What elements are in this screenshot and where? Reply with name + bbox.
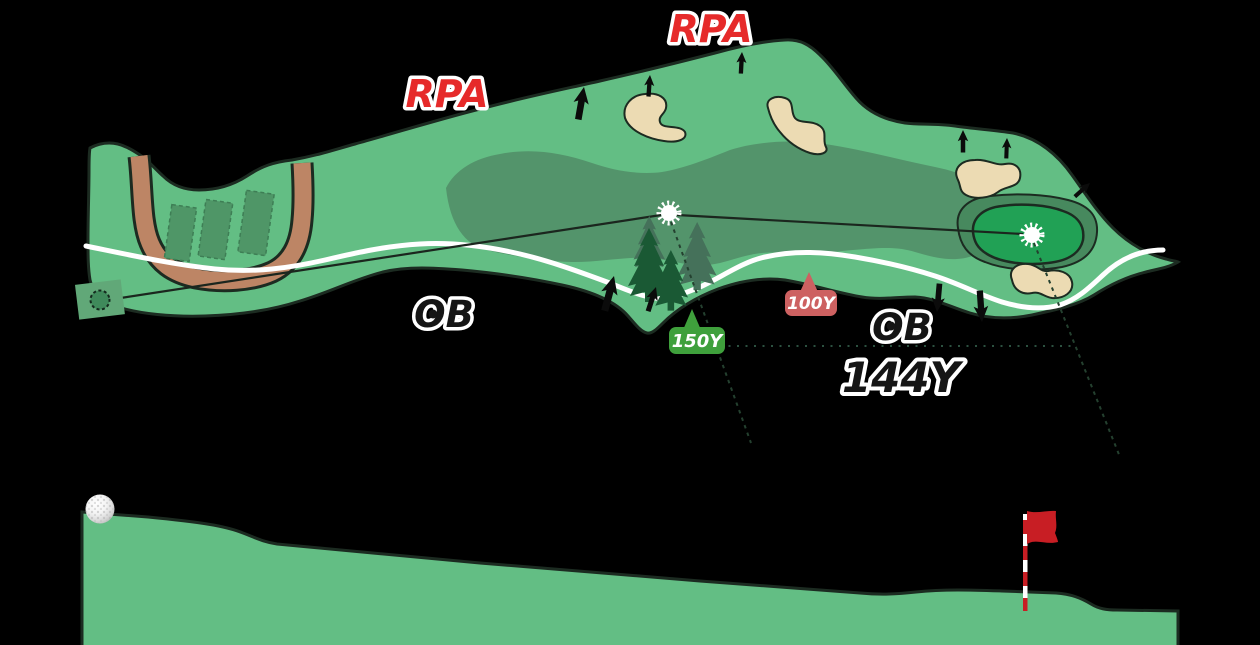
flag-pole [1023,514,1028,611]
ob-ring-dot [429,310,438,319]
svg-text:OB: OB [414,293,474,336]
rpa-label-right: RPA [669,7,752,51]
golf-ball-icon [86,495,115,524]
badge-pointer [683,309,701,330]
shot-distance-label: 144Y [842,353,964,402]
overhead-view: 150Y 100Y RPA RPA OB OB 144Y [75,7,1178,457]
tee-mat [75,279,125,319]
flag-banner [1027,511,1058,544]
elevation-profile [82,495,1178,645]
ob-label-left: OB [414,293,474,336]
golf-hole-map: 150Y 100Y RPA RPA OB OB 144Y [0,0,1260,645]
ob-ring-dot [887,322,896,331]
rpa-label-left: RPA [405,72,488,116]
badge-label: 100Y [787,294,836,314]
svg-text:OB: OB [872,306,932,349]
badge-label: 150Y [672,331,725,352]
ob-label-right: OB [872,306,932,349]
hole-map-canvas: 150Y 100Y RPA RPA OB OB 144Y [0,0,1260,645]
yardage-badge-150: 150Y [669,309,725,354]
profile-terrain [82,512,1178,645]
